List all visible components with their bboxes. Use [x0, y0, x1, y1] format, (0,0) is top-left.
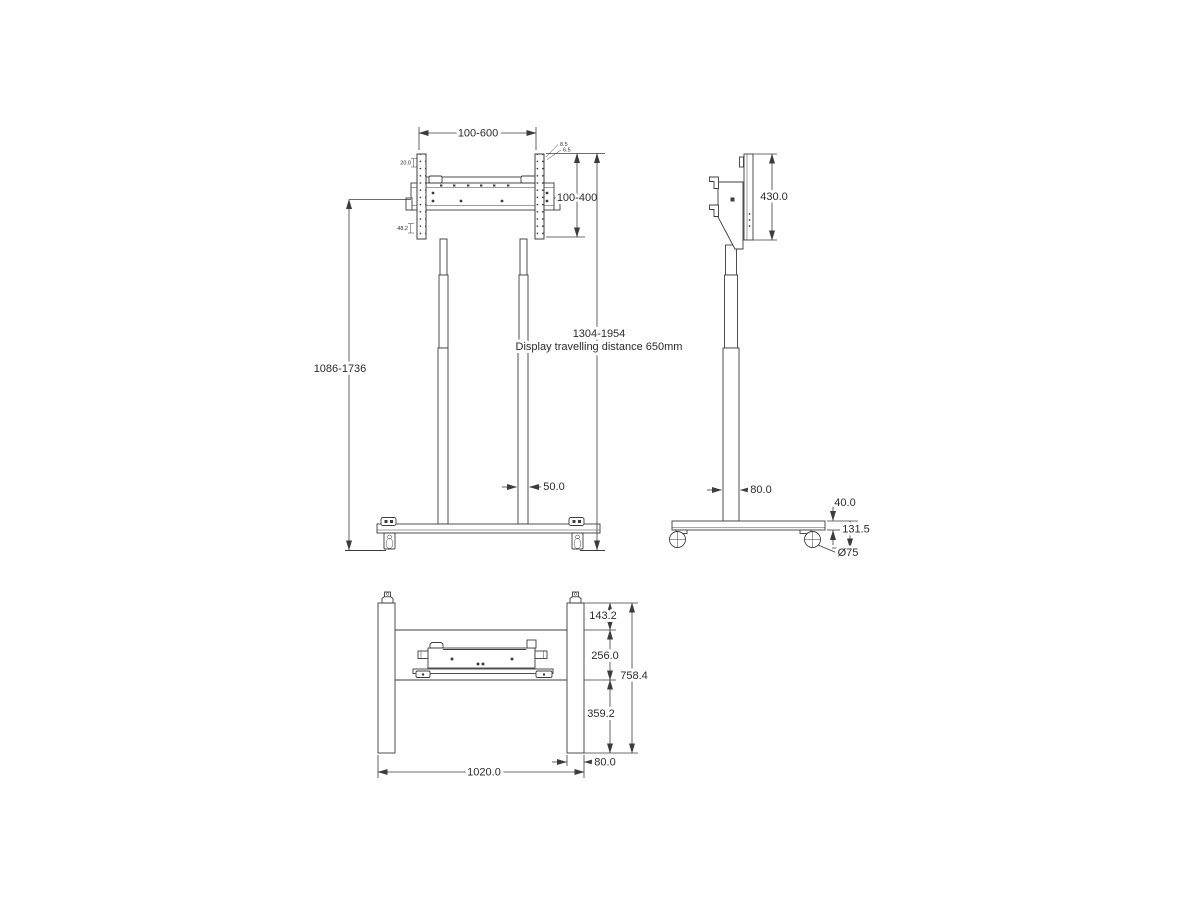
side-base [670, 521, 826, 548]
dim-base-height: 131.5 [842, 523, 870, 535]
dim-foot-width: 80.0 [594, 756, 615, 768]
top-caster-cap-left [382, 592, 393, 603]
front-telescopic-columns [438, 239, 528, 524]
dim-bracket-width-range: 100-600 [458, 127, 498, 139]
vesa-strip-right [535, 154, 544, 239]
dim-overall-height-range: 1304-1954 [573, 328, 626, 340]
front-display-bracket [406, 154, 560, 239]
side-mount-mechanism [710, 177, 744, 249]
dim-rear-offset: 359.2 [587, 708, 615, 720]
front-view: 100-600 100-400 1304-1954 Display travel… [314, 127, 683, 551]
dim-bracket-height-range: 100-400 [557, 192, 597, 204]
dim-front-offset: 143.2 [589, 610, 617, 622]
side-caster-left [670, 532, 686, 548]
dim-plate-height: 430.0 [760, 191, 788, 203]
dim-strip-pitch: 20.0 [400, 160, 411, 166]
dim-caster-diameter: Ø75 [838, 547, 859, 559]
dim-crossbar-depth: 256.0 [591, 650, 619, 662]
dim-overall-depth: 758.4 [620, 670, 648, 682]
tv-stand-dimension-drawing: 100-600 100-400 1304-1954 Display travel… [0, 0, 1200, 900]
note-hook-lower: 6.5 [563, 147, 571, 153]
note-travel-distance: Display travelling distance 650mm [516, 341, 683, 353]
side-view: 430.0 80.0 40.0 131.5 Ø75 [670, 154, 870, 559]
side-column [723, 245, 739, 521]
dim-column-width: 50.0 [543, 481, 564, 493]
dim-overall-width: 1020.0 [467, 766, 501, 778]
dim-strip-offset: 48.2 [397, 226, 408, 232]
top-caster-cap-right [570, 592, 581, 603]
front-base [345, 518, 605, 551]
top-mount-assembly [413, 640, 553, 678]
top-dimensions: 143.2 256.0 359.2 758.4 80.0 1020.0 [378, 603, 648, 778]
dim-column-depth: 80.0 [750, 484, 771, 496]
dim-lift-height-range: 1086-1736 [314, 363, 367, 375]
top-view: 143.2 256.0 359.2 758.4 80.0 1020.0 [378, 592, 648, 778]
dim-base-thickness: 40.0 [834, 497, 855, 509]
technical-drawing-page: 100-600 100-400 1304-1954 Display travel… [0, 0, 1200, 900]
vesa-strip-left [417, 154, 426, 239]
